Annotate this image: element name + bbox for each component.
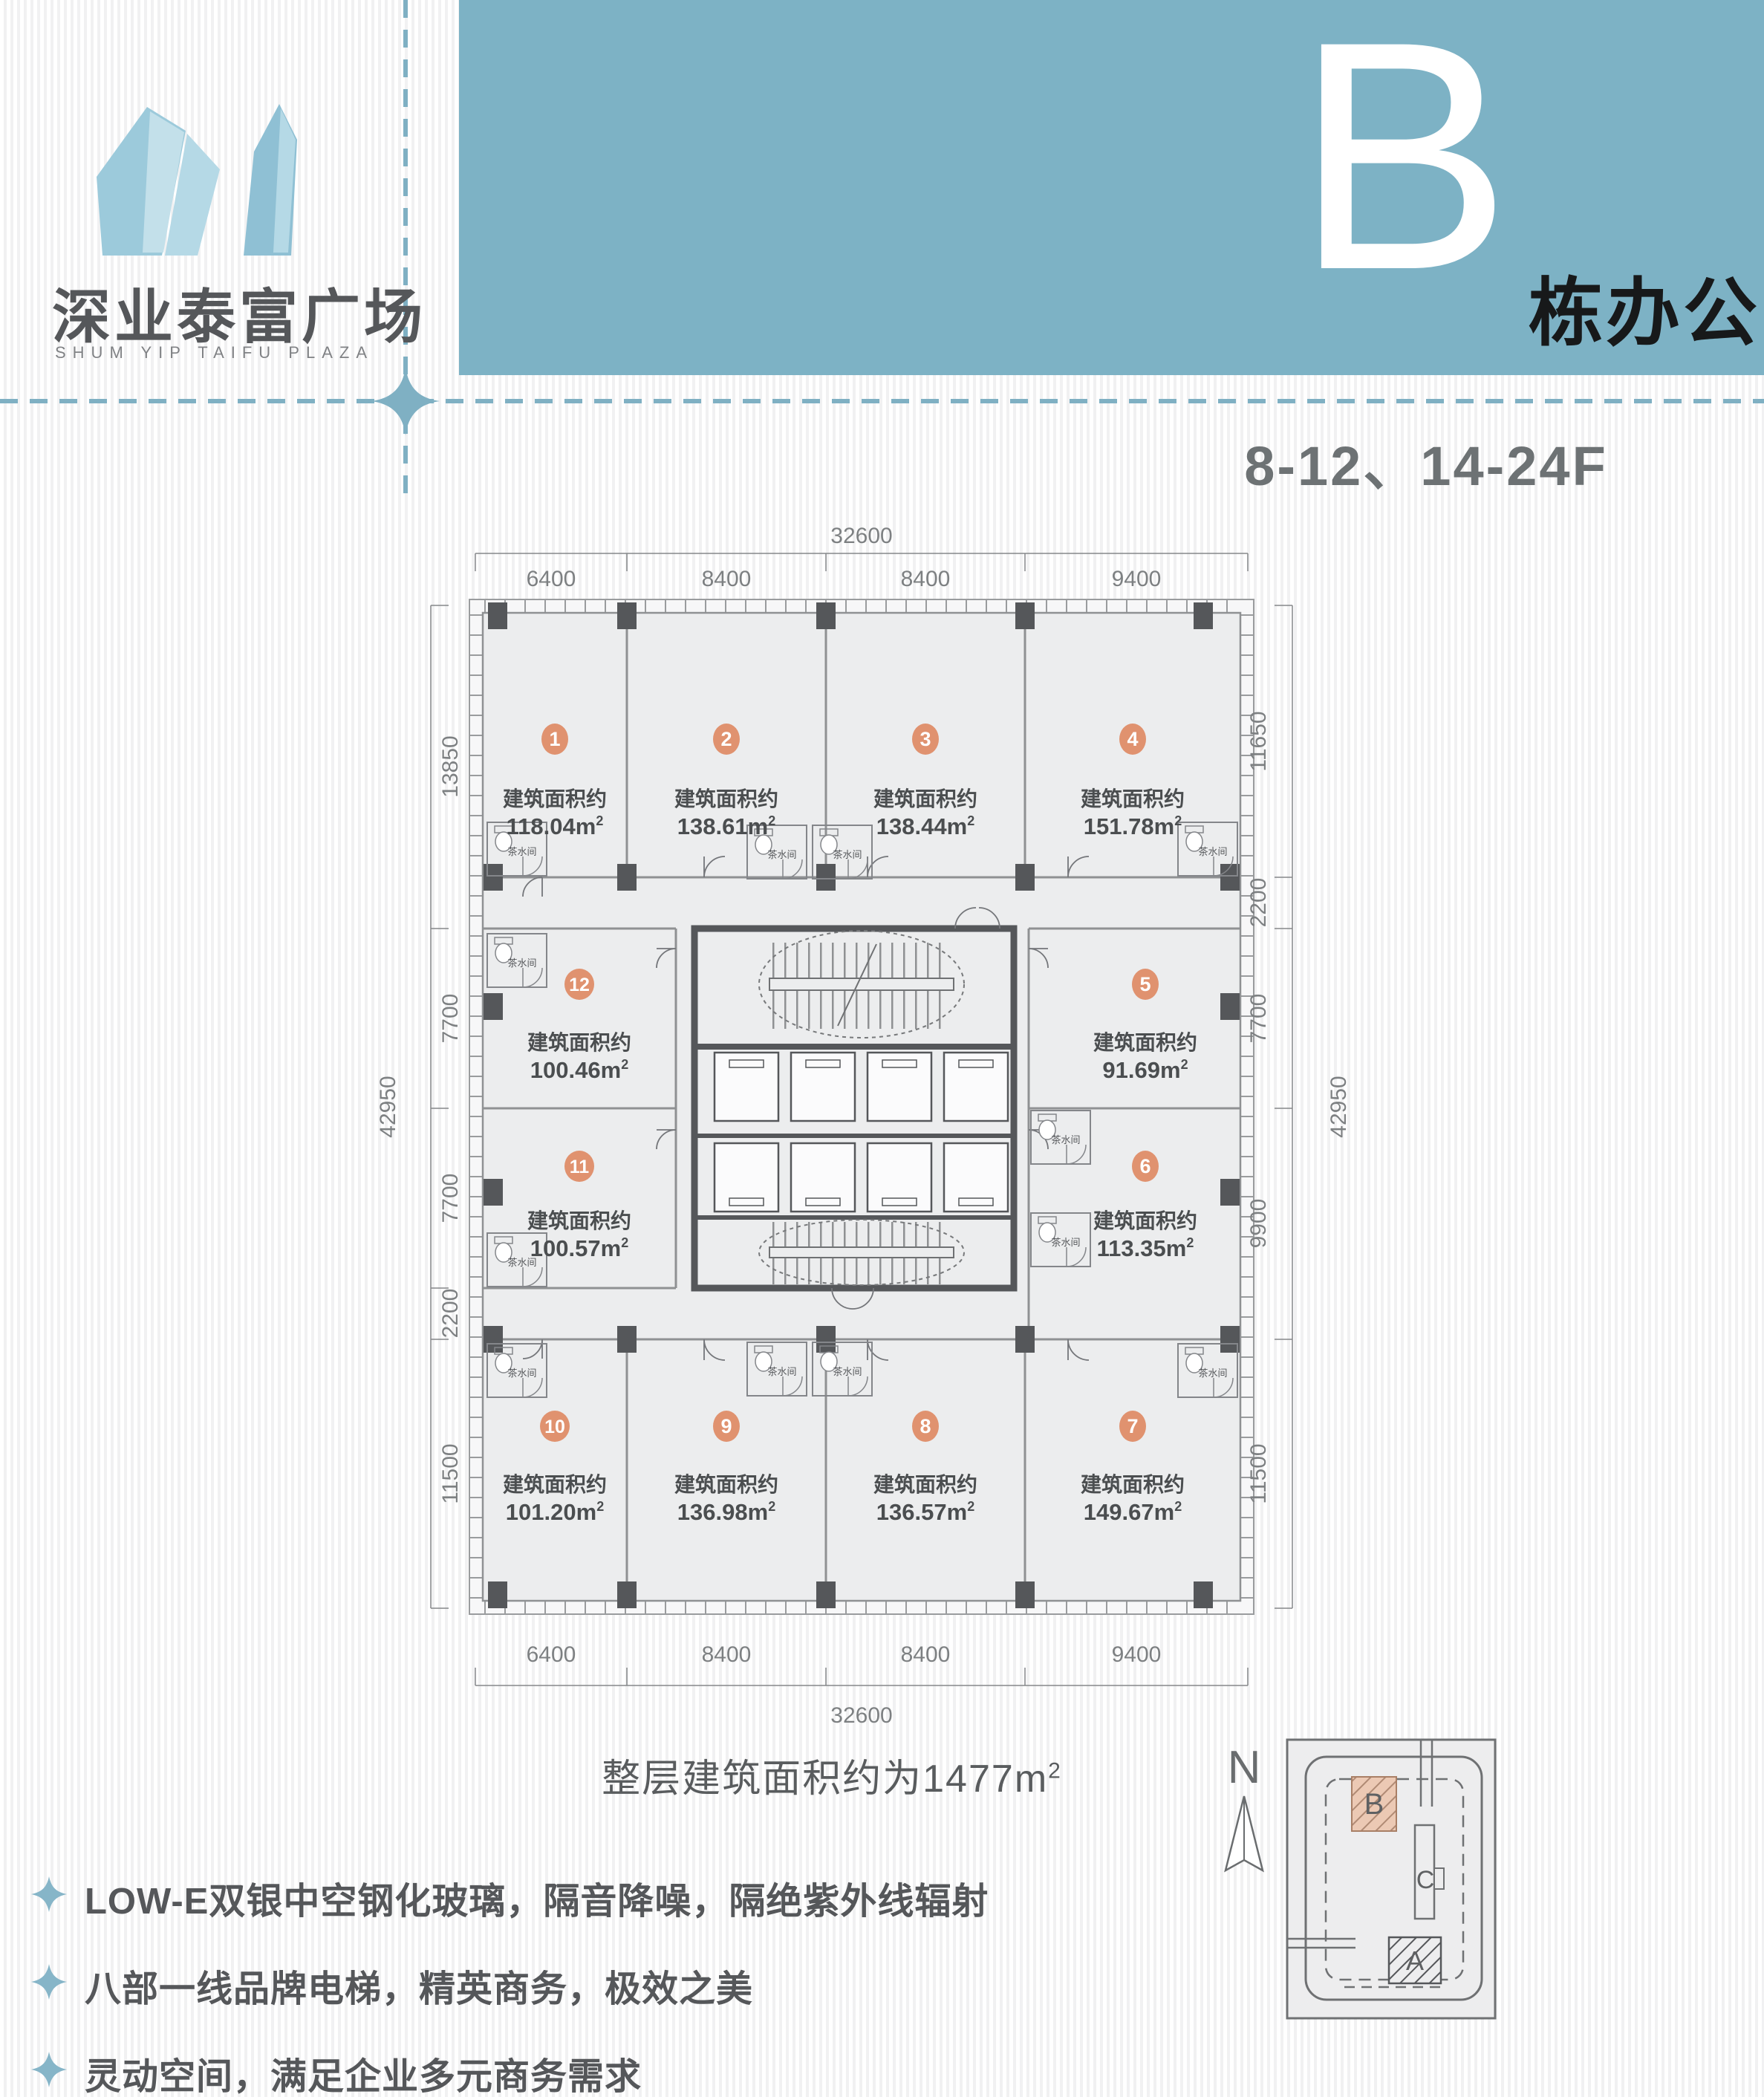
svg-text:11: 11 [570,1157,590,1177]
svg-text:8400: 8400 [901,567,951,591]
svg-text:12: 12 [569,975,590,995]
svg-text:6400: 6400 [527,1642,576,1667]
svg-text:建筑面积约: 建筑面积约 [674,1473,778,1496]
svg-text:建筑面积约: 建筑面积约 [674,787,778,810]
svg-text:138.44m2: 138.44m2 [876,813,974,839]
svg-text:9400: 9400 [1112,567,1162,591]
sparkle-bullet-icon [31,2052,67,2087]
floor-range-label: 8-12、14-24F [1159,422,1693,501]
svg-text:7700: 7700 [1246,994,1271,1044]
building-banner: B 栋办公 [459,0,1764,375]
tearoom-label: 茶水间 [833,849,862,860]
tearoom-label: 茶水间 [507,846,536,857]
feature-item: 灵动空间，满足企业多元商务需求 [31,2038,1145,2097]
svg-text:2: 2 [720,728,732,750]
svg-text:10: 10 [544,1417,565,1437]
tearoom-label: 茶水间 [767,1366,796,1377]
logo-title: 深业泰富广场 [52,269,409,354]
svg-text:1: 1 [549,728,560,750]
svg-text:113.35m2: 113.35m2 [1097,1235,1194,1261]
building-suffix-label: 栋办公 [1529,253,1760,360]
svg-text:3: 3 [920,728,931,750]
svg-text:建筑面积约: 建筑面积约 [873,787,977,810]
svg-text:8400: 8400 [901,1642,951,1667]
svg-text:91.69m2: 91.69m2 [1102,1057,1188,1083]
tearoom-label: 茶水间 [507,1368,536,1379]
svg-text:118.04m2: 118.04m2 [507,813,604,839]
tearoom-label: 茶水间 [833,1366,862,1377]
svg-text:8400: 8400 [702,1642,752,1667]
poster-page: B 栋办公 8-12、14-24F 深业泰富广场 SHUM YIP TAIFU … [0,0,1764,2097]
core [694,929,1014,1288]
feature-text: 八部一线品牌电梯，精英商务，极效之美 [85,1960,753,2012]
svg-text:100.57m2: 100.57m2 [530,1235,628,1261]
logo-subtitle: SHUM YIP TAIFU PLAZA [55,343,411,362]
feature-text: LOW-E双银中空钢化玻璃，隔音降噪，隔绝紫外线辐射 [85,1872,989,1925]
svg-text:151.78m2: 151.78m2 [1084,813,1182,839]
svg-text:建筑面积约: 建筑面积约 [873,1473,977,1496]
total-area-note: 整层建筑面积约为1477m2 [594,1747,1070,1803]
svg-text:6: 6 [1139,1155,1150,1177]
sparkle-icon [371,367,440,435]
svg-text:6400: 6400 [527,567,576,591]
svg-text:11500: 11500 [1246,1443,1271,1503]
svg-text:136.98m2: 136.98m2 [677,1499,775,1525]
svg-text:42950: 42950 [1327,1076,1351,1137]
svg-text:A: A [1406,1945,1424,1976]
svg-text:N: N [1228,1742,1261,1793]
svg-text:建筑面积约: 建筑面积约 [1093,1209,1197,1232]
horizontal-dashed-line [0,399,1764,403]
svg-text:7700: 7700 [438,1174,463,1223]
svg-text:建筑面积约: 建筑面积约 [527,1031,631,1054]
svg-text:8400: 8400 [702,567,752,591]
feature-list: LOW-E双银中空钢化玻璃，隔音降噪，隔绝紫外线辐射 八部一线品牌电梯，精英商务… [31,1863,1145,2097]
svg-text:32600: 32600 [830,1703,892,1728]
tearoom-label: 茶水间 [1198,1368,1227,1379]
svg-text:101.20m2: 101.20m2 [506,1499,604,1525]
building-letter: B [1295,0,1511,318]
tearoom-label: 茶水间 [1051,1134,1080,1145]
tearoom-label: 茶水间 [507,958,536,969]
svg-text:2200: 2200 [1246,878,1271,928]
site-plan: N B C A [1174,1723,1589,2035]
svg-text:2200: 2200 [438,1289,463,1339]
svg-text:100.46m2: 100.46m2 [530,1057,628,1083]
floor-plan: 茶水间 茶水间 茶水间 茶水间 茶水间 茶水间 茶水间 茶水间 茶水间 茶水间 … [357,494,1374,1801]
svg-text:136.57m2: 136.57m2 [876,1499,974,1525]
svg-text:42950: 42950 [376,1076,400,1137]
svg-text:7: 7 [1127,1415,1138,1437]
north-arrow-icon: N [1226,1742,1263,1870]
site-map: B C A [1287,1740,1495,2018]
svg-text:32600: 32600 [830,524,892,548]
svg-text:8: 8 [920,1415,931,1437]
svg-text:建筑面积约: 建筑面积约 [1081,787,1185,810]
tearoom-label: 茶水间 [1051,1237,1080,1248]
svg-text:149.67m2: 149.67m2 [1084,1499,1182,1525]
svg-text:13850: 13850 [438,735,463,797]
sparkle-bullet-icon [31,1964,67,2000]
feature-item: LOW-E双银中空钢化玻璃，隔音降噪，隔绝紫外线辐射 [31,1863,1145,1951]
svg-text:C: C [1416,1866,1435,1894]
svg-text:9900: 9900 [1246,1199,1271,1249]
logo-crystal-icon [59,103,319,257]
svg-text:建筑面积约: 建筑面积约 [527,1209,631,1232]
feature-text: 灵动空间，满足企业多元商务需求 [85,2047,642,2097]
svg-text:9: 9 [720,1415,732,1437]
svg-text:建筑面积约: 建筑面积约 [1081,1473,1185,1496]
svg-text:9400: 9400 [1112,1642,1162,1667]
svg-text:138.61m2: 138.61m2 [677,813,775,839]
svg-text:11650: 11650 [1246,711,1271,771]
svg-text:建筑面积约: 建筑面积约 [503,1473,607,1496]
tearoom-label: 茶水间 [767,849,796,860]
svg-text:5: 5 [1139,973,1150,995]
svg-text:11500: 11500 [438,1443,463,1503]
sparkle-bullet-icon [31,1876,67,1912]
svg-text:7700: 7700 [438,994,463,1044]
feature-item: 八部一线品牌电梯，精英商务，极效之美 [31,1951,1145,2038]
svg-text:B: B [1364,1788,1384,1821]
tearoom-label: 茶水间 [1198,846,1227,857]
svg-text:建筑面积约: 建筑面积约 [1093,1031,1197,1054]
svg-text:建筑面积约: 建筑面积约 [503,787,607,810]
svg-text:4: 4 [1127,728,1138,750]
